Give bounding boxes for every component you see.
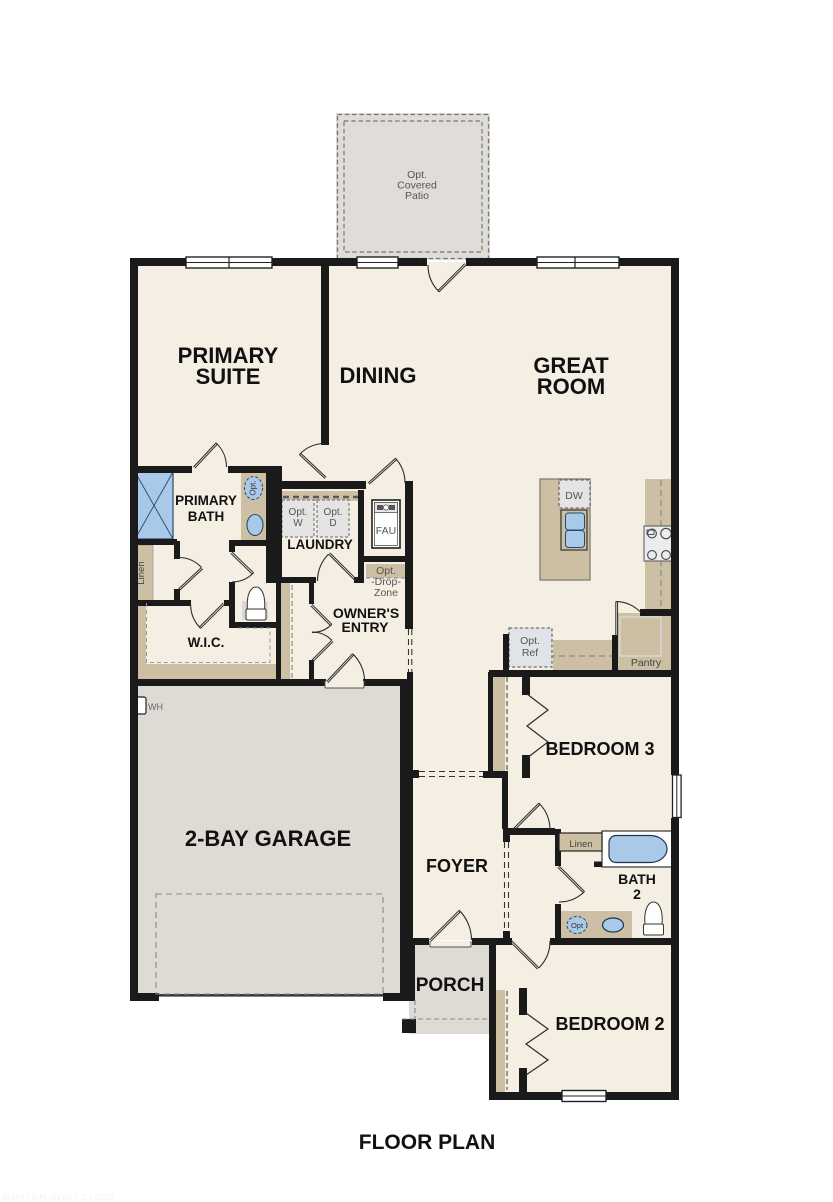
svg-text:Ref: Ref xyxy=(522,647,538,659)
svg-text:4518 FLR PLAN REV 2.1 01/22: 4518 FLR PLAN REV 2.1 01/22 xyxy=(2,1193,115,1202)
svg-text:Opt.: Opt. xyxy=(324,507,343,518)
svg-text:Opt.: Opt. xyxy=(520,635,540,647)
svg-text:2: 2 xyxy=(633,886,641,902)
svg-text:FLOOR PLAN: FLOOR PLAN xyxy=(359,1131,496,1154)
svg-text:W.I.C.: W.I.C. xyxy=(188,635,225,650)
svg-text:ROOM: ROOM xyxy=(537,374,605,399)
svg-text:FOYER: FOYER xyxy=(426,856,488,876)
svg-text:Opt: Opt xyxy=(571,921,584,930)
svg-text:BEDROOM 3: BEDROOM 3 xyxy=(545,739,654,759)
svg-text:WH: WH xyxy=(148,702,163,712)
svg-text:BATH: BATH xyxy=(618,871,656,887)
svg-text:W: W xyxy=(293,518,303,529)
svg-text:Zone: Zone xyxy=(374,587,398,599)
svg-text:Opt.: Opt. xyxy=(289,507,308,518)
svg-text:BEDROOM 2: BEDROOM 2 xyxy=(555,1014,664,1034)
svg-text:Opt.: Opt. xyxy=(249,480,258,495)
svg-text:Linen: Linen xyxy=(569,839,592,850)
svg-text:Patio: Patio xyxy=(405,190,429,202)
svg-text:Pantry: Pantry xyxy=(631,657,662,669)
svg-text:SUITE: SUITE xyxy=(196,364,261,389)
svg-text:DW: DW xyxy=(565,490,583,502)
svg-text:PORCH: PORCH xyxy=(416,975,485,996)
svg-text:2-BAY GARAGE: 2-BAY GARAGE xyxy=(185,826,351,851)
svg-text:D: D xyxy=(329,518,336,529)
svg-text:PRIMARY: PRIMARY xyxy=(175,493,237,508)
svg-text:FAU: FAU xyxy=(376,525,396,537)
svg-text:BATH: BATH xyxy=(188,509,225,524)
svg-text:ENTRY: ENTRY xyxy=(342,619,390,635)
svg-text:LAUNDRY: LAUNDRY xyxy=(287,537,353,552)
svg-text:DINING: DINING xyxy=(340,363,417,388)
